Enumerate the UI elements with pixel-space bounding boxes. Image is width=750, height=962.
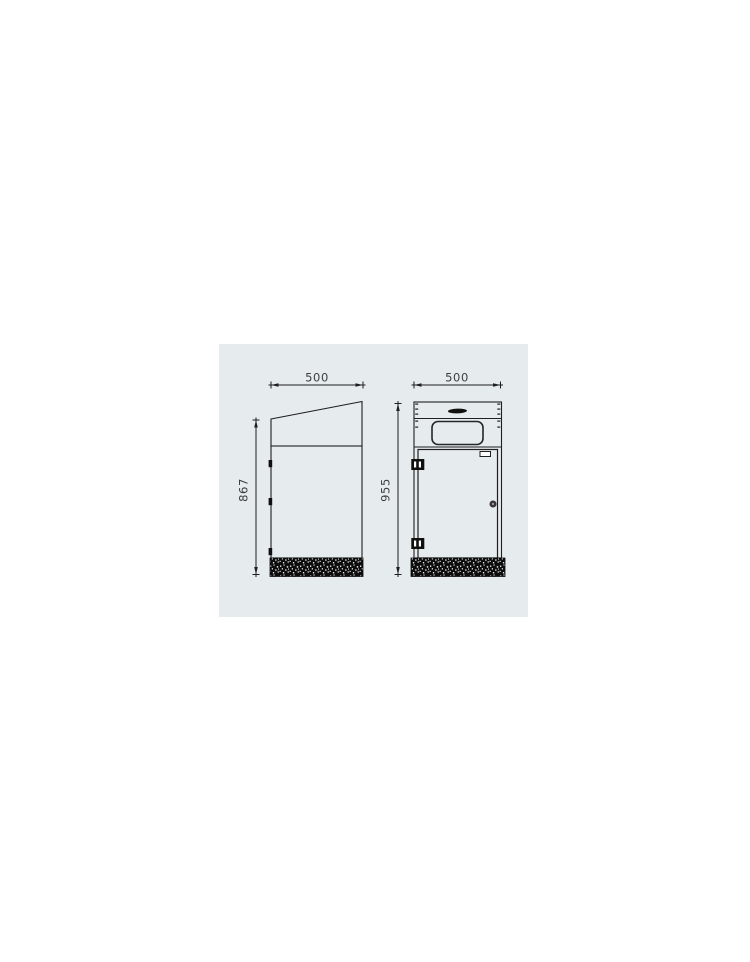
page: 500 867 <box>0 0 750 962</box>
side-hinge-tab-icon <box>269 460 273 467</box>
side-width-dimension: 500 <box>269 371 366 389</box>
front-height-dimension: 955 <box>379 401 402 577</box>
side-height-dimension: 867 <box>237 418 260 578</box>
door-lock-icon <box>490 501 497 508</box>
dim-arrow-left-icon <box>271 383 279 387</box>
dim-arrow-down-icon <box>254 567 258 575</box>
side-view: 500 867 <box>237 371 366 578</box>
dim-arrow-right-icon <box>493 383 501 387</box>
front-width-dim-label: 500 <box>445 371 469 385</box>
side-base-plinth <box>270 558 363 577</box>
handle-slot-icon <box>448 408 467 413</box>
dim-arrow-down-icon <box>396 567 400 575</box>
front-width-dimension: 500 <box>412 371 504 389</box>
side-hood-outline <box>271 402 362 447</box>
side-body-outline <box>271 446 362 558</box>
front-body-outline <box>414 402 502 558</box>
side-width-dim-label: 500 <box>305 371 329 385</box>
front-height-dim-label: 955 <box>379 478 393 502</box>
door-hinge-bottom-icon <box>411 538 424 549</box>
weld-marks <box>415 404 500 428</box>
dim-arrow-left-icon <box>414 383 422 387</box>
side-hinge-tab-icon <box>269 498 273 505</box>
dim-arrow-right-icon <box>356 383 364 387</box>
dim-arrow-up-icon <box>254 420 258 428</box>
dim-arrow-up-icon <box>396 404 400 412</box>
front-door-outline <box>418 450 498 559</box>
door-hinge-top-icon <box>411 459 424 470</box>
litter-flap-outline <box>432 422 483 445</box>
front-view: 500 955 <box>379 371 506 578</box>
side-height-dim-label: 867 <box>237 478 251 502</box>
technical-drawing: 500 867 <box>219 344 528 617</box>
side-hinge-tab-icon <box>269 548 273 555</box>
door-label-plate <box>480 452 491 457</box>
front-base-plinth <box>411 558 505 577</box>
drawing-panel: 500 867 <box>219 344 528 617</box>
